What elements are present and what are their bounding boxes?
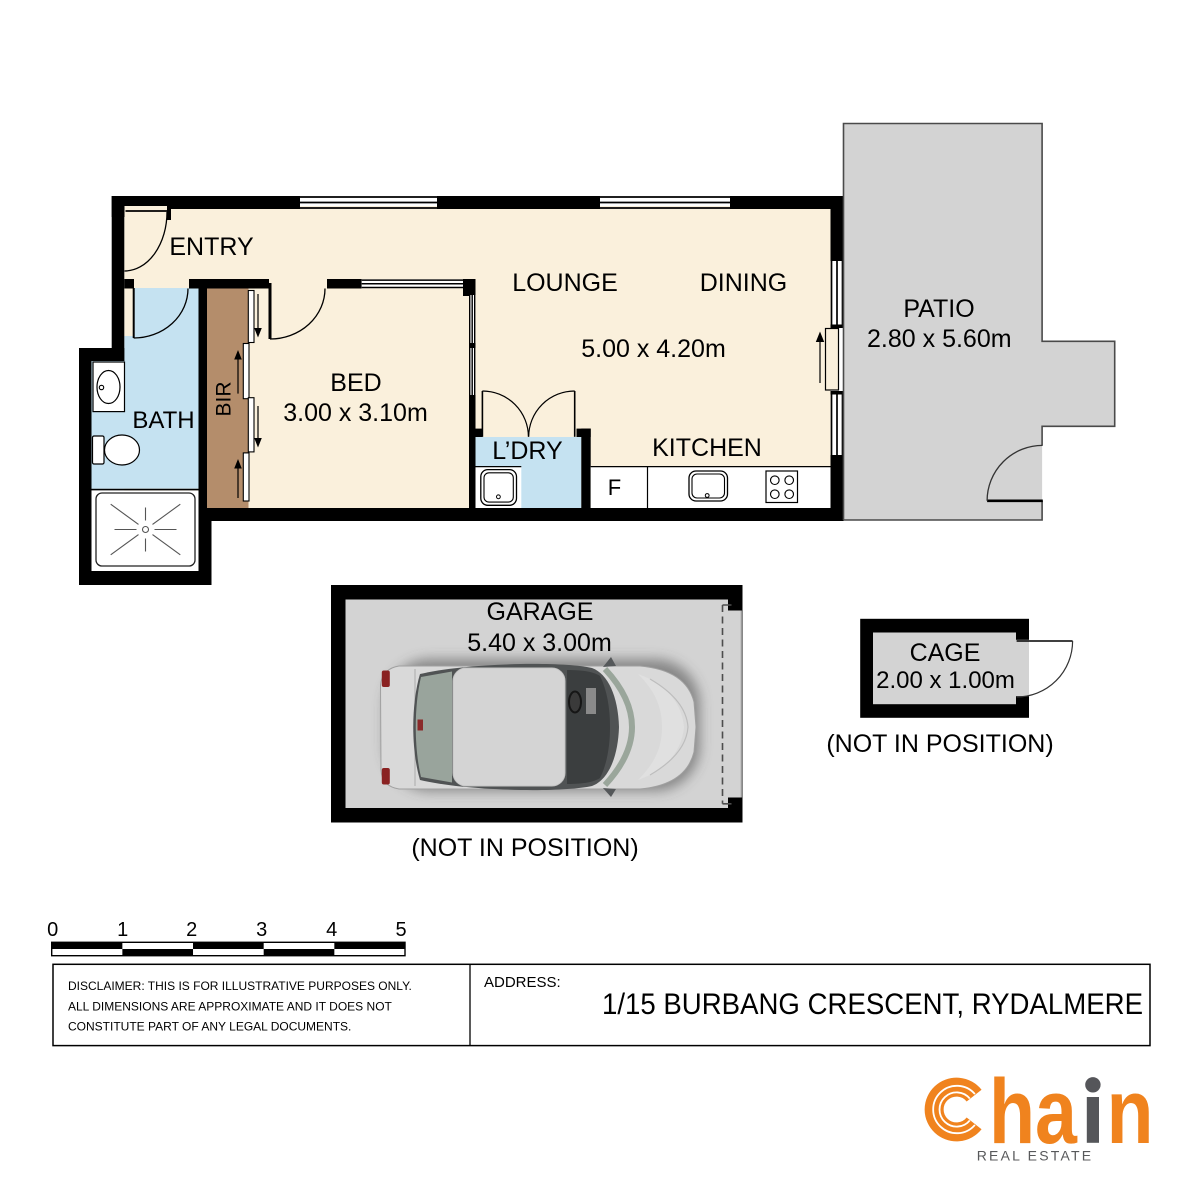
svg-text:CONSTITUTE PART OF ANY LEGAL D: CONSTITUTE PART OF ANY LEGAL DOCUMENTS. xyxy=(68,1020,351,1034)
svg-text:5: 5 xyxy=(395,919,406,941)
svg-text:BATH: BATH xyxy=(132,407,194,434)
svg-text:1: 1 xyxy=(117,919,128,941)
svg-text:1/15 BURBANG CRESCENT, RYDALME: 1/15 BURBANG CRESCENT, RYDALMERE xyxy=(602,988,1143,1021)
svg-text:CAGE: CAGE xyxy=(910,639,981,667)
svg-text:DISCLAIMER: THIS IS FOR ILLUST: DISCLAIMER: THIS IS FOR ILLUSTRATIVE PUR… xyxy=(68,979,412,993)
svg-text:GARAGE: GARAGE xyxy=(487,598,594,626)
svg-text:REAL ESTATE: REAL ESTATE xyxy=(977,1148,1094,1164)
svg-text:DINING: DINING xyxy=(700,269,788,297)
svg-text:F: F xyxy=(608,475,621,500)
svg-text:3.00 x 3.10m: 3.00 x 3.10m xyxy=(283,399,428,427)
svg-text:5.00 x 4.20m: 5.00 x 4.20m xyxy=(581,335,726,363)
svg-text:4: 4 xyxy=(326,919,337,941)
svg-text:BED: BED xyxy=(330,369,381,397)
svg-text:0: 0 xyxy=(47,919,58,941)
svg-text:n: n xyxy=(1107,1061,1154,1163)
svg-text:BIR: BIR xyxy=(213,381,236,416)
svg-text:ALL DIMENSIONS ARE APPROXIMATE: ALL DIMENSIONS ARE APPROXIMATE AND IT DO… xyxy=(68,1000,393,1014)
svg-text:3: 3 xyxy=(256,919,267,941)
svg-text:2: 2 xyxy=(186,919,197,941)
svg-text:(NOT IN POSITION): (NOT IN POSITION) xyxy=(411,834,638,862)
svg-text:PATIO: PATIO xyxy=(903,295,974,323)
svg-text:ENTRY: ENTRY xyxy=(169,233,254,261)
svg-text:2.00 x 1.00m: 2.00 x 1.00m xyxy=(876,667,1015,694)
svg-text:ADDRESS:: ADDRESS: xyxy=(484,974,561,991)
svg-text:2.80 x 5.60m: 2.80 x 5.60m xyxy=(867,325,1012,353)
svg-text:L’DRY: L’DRY xyxy=(492,437,563,465)
svg-text:(NOT IN POSITION): (NOT IN POSITION) xyxy=(826,730,1053,758)
svg-text:5.40 x 3.00m: 5.40 x 3.00m xyxy=(467,629,612,657)
svg-text:LOUNGE: LOUNGE xyxy=(512,269,618,297)
svg-text:KITCHEN: KITCHEN xyxy=(652,434,762,462)
